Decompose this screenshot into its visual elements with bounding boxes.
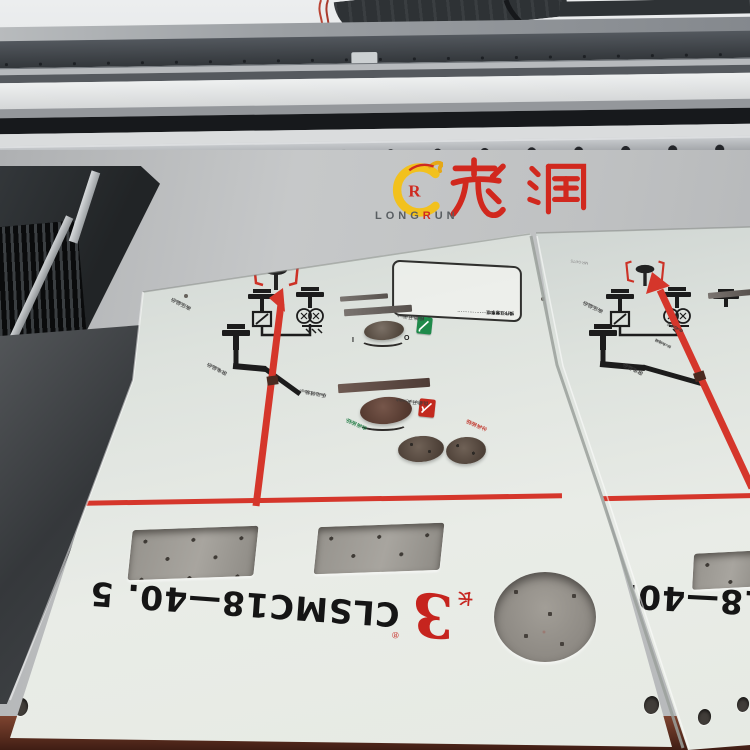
photo-uv-flatbed-printer-printing-panels: 操作注意事项 ·································… (0, 0, 750, 750)
watermark-chinese-characters (447, 156, 592, 218)
watermark-longrun-logo: R LONGRUN (355, 150, 625, 240)
latin-accent: R (423, 210, 435, 222)
watermark-latin: LONGRUN (375, 210, 459, 222)
latin-prefix: LONG (375, 210, 423, 222)
panel-edges-overlay (0, 0, 750, 750)
svg-text:R: R (408, 182, 421, 201)
latin-suffix: UN (435, 210, 459, 222)
